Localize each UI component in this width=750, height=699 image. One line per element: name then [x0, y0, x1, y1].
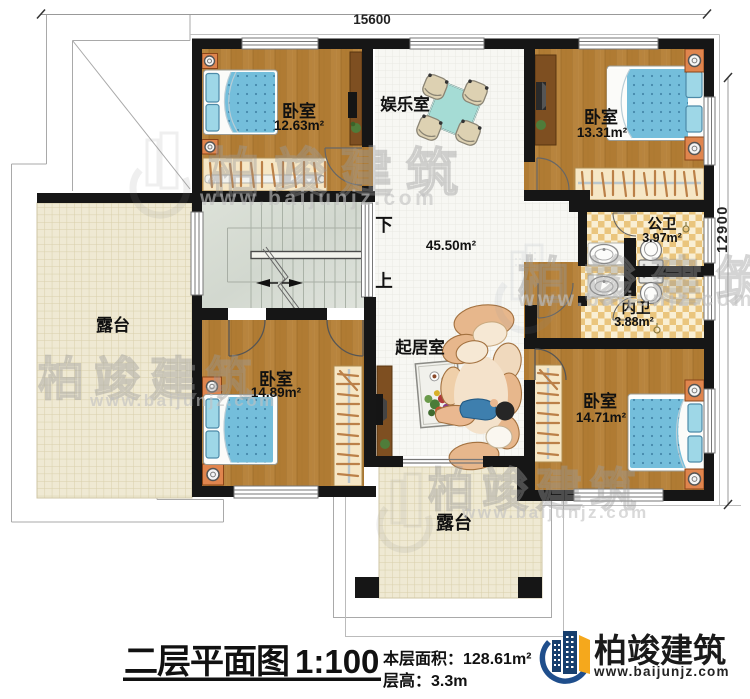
svg-text:14.71m²: 14.71m²: [576, 410, 627, 425]
svg-text:起居室: 起居室: [394, 337, 445, 357]
svg-text:层高：3.3m: 层高：3.3m: [383, 671, 467, 690]
svg-text:1:100: 1:100: [295, 643, 379, 680]
svg-text:www.baijunjz.com: www.baijunjz.com: [199, 187, 437, 210]
svg-text:45.50m²: 45.50m²: [426, 238, 477, 253]
svg-text:www.baijunjz.com: www.baijunjz.com: [89, 391, 277, 410]
svg-text:13.31m²: 13.31m²: [577, 125, 628, 140]
svg-text:露台: 露台: [96, 315, 130, 335]
svg-text:www.baijunjz.com: www.baijunjz.com: [593, 664, 730, 679]
svg-text:3.97m²: 3.97m²: [642, 231, 682, 245]
svg-text:娱乐室: 娱乐室: [380, 94, 430, 114]
svg-text:上: 上: [375, 271, 393, 291]
svg-text:3.88m²: 3.88m²: [614, 315, 654, 329]
svg-text:12.63m²: 12.63m²: [274, 118, 325, 133]
svg-text:12900: 12900: [715, 205, 731, 253]
svg-text:15600: 15600: [353, 12, 391, 27]
svg-text:www.baijunjz.com: www.baijunjz.com: [461, 503, 649, 522]
svg-text:卧室: 卧室: [583, 391, 617, 411]
svg-text:卧室: 卧室: [584, 107, 618, 127]
svg-text:下: 下: [375, 215, 393, 235]
svg-text:二层平面图: 二层平面图: [124, 643, 289, 681]
svg-text:本层面积：128.61m²: 本层面积：128.61m²: [383, 649, 532, 668]
